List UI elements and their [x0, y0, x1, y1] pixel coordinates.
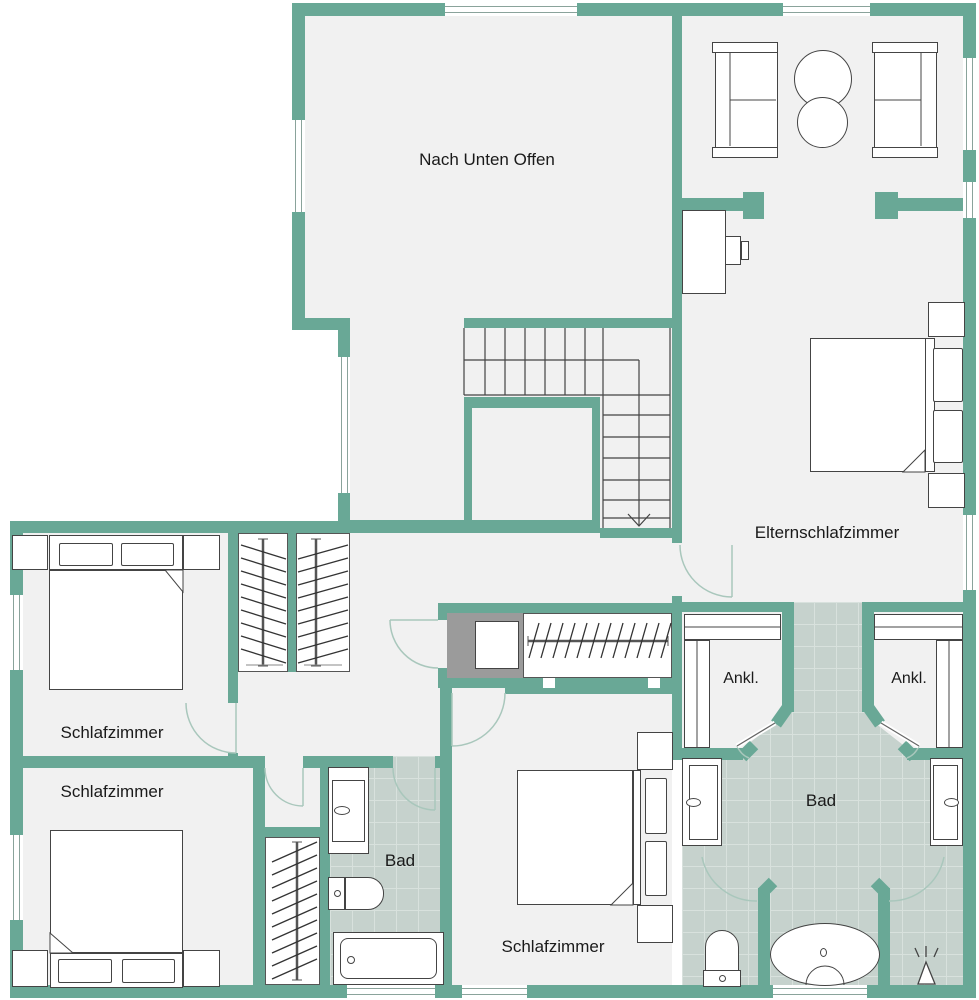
wall — [443, 603, 677, 613]
wall — [672, 16, 682, 543]
pillow — [121, 543, 174, 566]
window — [963, 515, 976, 590]
window — [963, 182, 976, 218]
wall — [782, 602, 794, 712]
closet-symbol — [936, 640, 963, 748]
room-label-bath-large: Bad — [806, 791, 836, 811]
floor-stair-area — [350, 330, 672, 528]
window — [773, 985, 867, 998]
door-opening — [228, 703, 238, 753]
wall — [443, 678, 677, 688]
wall — [10, 756, 253, 768]
wall — [758, 888, 770, 985]
drain — [347, 956, 355, 964]
wall — [464, 397, 600, 408]
pillow — [58, 959, 112, 983]
bed-mattress — [50, 830, 183, 953]
window — [462, 985, 527, 998]
closet-symbol — [684, 614, 781, 640]
pillow — [645, 841, 667, 896]
sofa-symbol — [874, 52, 937, 148]
room-label-closet-left: Ankl. — [723, 670, 759, 688]
bed-mattress — [49, 570, 183, 690]
window — [10, 595, 23, 670]
pillow — [122, 959, 175, 983]
door-opening — [672, 543, 682, 596]
pillow — [645, 778, 667, 834]
nightstand — [928, 302, 965, 337]
wall — [288, 533, 296, 672]
wall — [228, 533, 238, 703]
bed-mattress — [810, 338, 926, 472]
room-label-bath-small: Bad — [385, 851, 415, 871]
wall-pillar — [875, 192, 898, 219]
nightstand — [183, 950, 220, 987]
room-label-open-space: Nach Unten Offen — [419, 150, 555, 170]
wardrobe — [523, 613, 672, 678]
window — [963, 58, 976, 150]
sofa-armrest — [872, 147, 938, 158]
wall — [464, 397, 472, 528]
wall — [253, 756, 265, 985]
floor-open-space — [305, 16, 672, 330]
door-jamb — [648, 678, 660, 688]
drain — [820, 948, 827, 957]
window — [783, 3, 870, 16]
faucet-knob — [334, 806, 350, 815]
faucet-knob — [944, 798, 959, 807]
pillow — [933, 410, 963, 463]
pillow — [933, 348, 963, 402]
door-opening — [265, 756, 303, 768]
nightstand — [12, 950, 48, 987]
pillow — [59, 543, 113, 566]
room-label-closet-right: Ankl. — [891, 670, 927, 688]
wall — [592, 397, 600, 528]
chair-symbol — [741, 241, 749, 260]
sofa-symbol — [715, 52, 778, 148]
nightstand — [637, 905, 673, 943]
floor-plan: Nach Unten Offen Elternschlafzimmer Schl… — [0, 0, 979, 1000]
wall — [464, 318, 672, 328]
toilet-bowl — [705, 930, 739, 972]
room-label-master: Elternschlafzimmer — [755, 523, 900, 543]
door-jamb — [543, 678, 555, 688]
faucet-knob — [686, 798, 701, 807]
wall — [862, 602, 963, 612]
wall — [878, 888, 890, 985]
coffee-table — [797, 97, 848, 148]
nightstand — [183, 535, 220, 570]
wall — [672, 602, 794, 612]
nightstand — [637, 732, 673, 770]
window — [347, 985, 435, 998]
wall — [10, 521, 355, 533]
nightstand — [928, 473, 965, 508]
window — [292, 120, 305, 212]
wardrobe — [296, 533, 350, 672]
window — [338, 357, 350, 493]
toilet-bowl — [345, 877, 384, 910]
wall-pillar — [743, 192, 764, 219]
sofa-armrest — [712, 147, 778, 158]
room-label-bedroom-bottom-mid: Schlafzimmer — [502, 937, 605, 957]
closet-symbol — [684, 640, 710, 748]
wall — [338, 520, 600, 533]
wall — [672, 612, 682, 760]
window — [445, 3, 577, 16]
wall — [600, 528, 672, 538]
wall — [862, 602, 874, 712]
room-label-bedroom-bottom-left: Schlafzimmer — [61, 782, 164, 802]
bed-mattress — [517, 770, 633, 905]
wardrobe — [238, 533, 288, 672]
nightstand — [12, 535, 48, 570]
closet-symbol — [874, 614, 963, 640]
wall — [292, 3, 975, 16]
wall — [898, 198, 963, 211]
bed-headboard — [633, 770, 641, 905]
shaft-duct — [475, 621, 519, 669]
desk-symbol — [682, 210, 726, 294]
window — [10, 835, 23, 920]
room-label-bedroom-left: Schlafzimmer — [61, 723, 164, 743]
chair-symbol — [725, 236, 741, 265]
toilet-flush — [719, 975, 726, 982]
toilet-flush — [334, 890, 341, 897]
wardrobe — [265, 837, 320, 985]
